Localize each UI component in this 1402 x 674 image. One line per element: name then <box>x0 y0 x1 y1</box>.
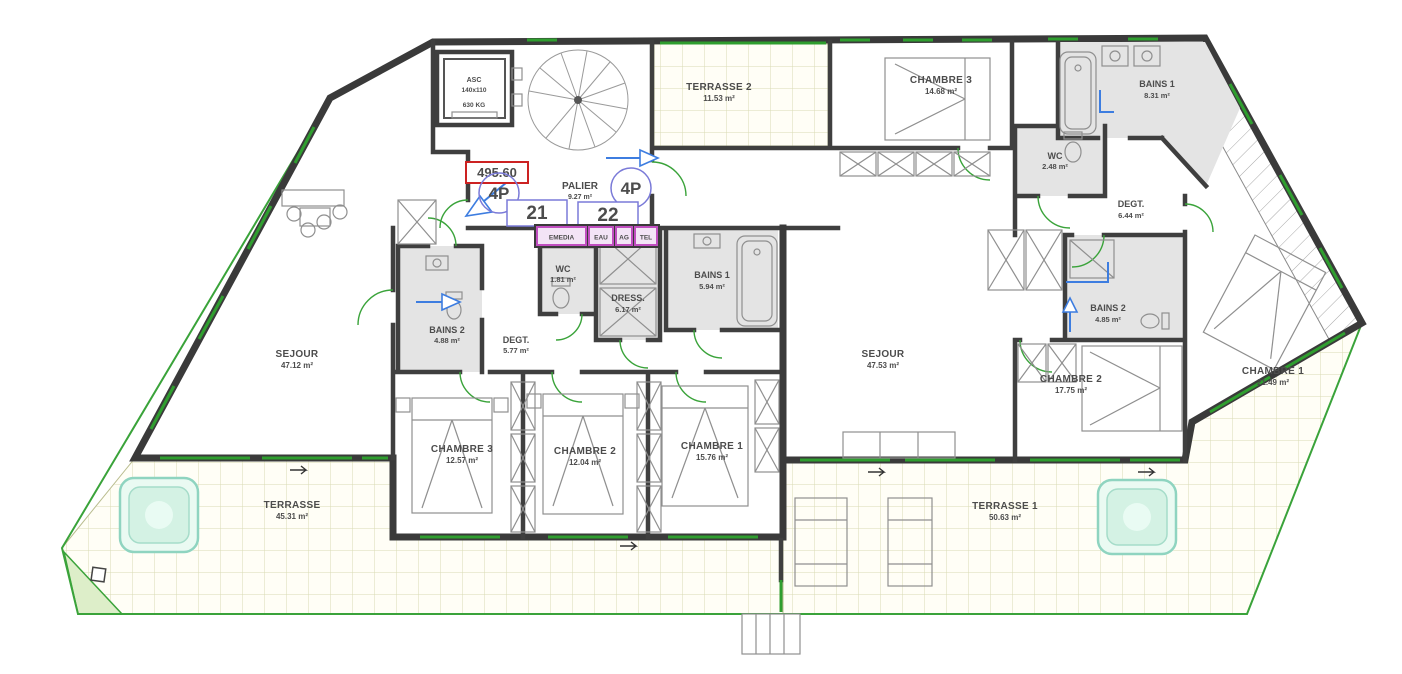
room-label-wc-21: WC <box>556 264 571 274</box>
floor-plan-canvas: ASC 140x110 630 KG <box>0 0 1402 674</box>
elevator-label: ASC <box>467 77 482 84</box>
room-label-chambre1-22: CHAMBRE 1 <box>1242 366 1304 377</box>
core-labels: 495.60 4P 4P PALIER 9.27 m² 21 22 EMEDIA… <box>466 162 660 248</box>
exterior-step <box>742 614 800 654</box>
room-label-terrasse1: TERRASSE 1 <box>972 501 1038 512</box>
room-area-bains1-21: 5.94 m² <box>699 282 725 291</box>
bed-chambre2-22 <box>1082 346 1182 431</box>
room-area-wc-21: 1.81 m² <box>550 275 576 284</box>
utility-ducts: EMEDIA EAU AG TEL <box>534 224 660 248</box>
palier-label: PALIER <box>562 181 599 192</box>
elevator-capacity: 630 KG <box>463 102 485 109</box>
unit21-number: 21 <box>526 203 548 224</box>
bains1-21-floor <box>666 230 778 330</box>
room-area-terrasse1: 50.63 m² <box>989 513 1021 522</box>
room-area-chambre3-22: 14.68 m² <box>925 87 957 96</box>
room-label-bains1-21: BAINS 1 <box>694 270 730 280</box>
unit22-type: 4P <box>621 179 642 198</box>
room-label-wc-22: WC <box>1048 151 1063 161</box>
room-label-degt-21: DEGT. <box>503 335 530 345</box>
room-label-chambre3-22: CHAMBRE 3 <box>910 75 972 86</box>
room-area-chambre2-21: 12.04 m² <box>569 458 601 467</box>
elevator: ASC 140x110 630 KG <box>437 52 522 125</box>
room-label-terrasse-21: TERRASSE <box>264 500 321 511</box>
room-area-dress-21: 6.17 m² <box>615 305 641 314</box>
room-label-chambre3-21: CHAMBRE 3 <box>431 444 493 455</box>
spiral-staircase <box>528 50 628 150</box>
room-area-chambre1-21: 15.76 m² <box>696 453 728 462</box>
bed-chambre3-22 <box>885 58 990 140</box>
sofa-sejour-21 <box>282 190 347 237</box>
room-area-chambre1-22: 21.49 m² <box>1257 378 1289 387</box>
room-label-bains2-21: BAINS 2 <box>429 325 465 335</box>
room-area-wc-22: 2.48 m² <box>1042 162 1068 171</box>
room-label-terrasse2: TERRASSE 2 <box>686 82 752 93</box>
room-area-chambre2-22: 17.75 m² <box>1055 386 1087 395</box>
room-area-terrasse-21: 45.31 m² <box>276 512 308 521</box>
room-area-terrasse2: 11.53 m² <box>703 94 735 103</box>
utility-emedia: EMEDIA <box>549 235 575 242</box>
room-label-chambre1-21: CHAMBRE 1 <box>681 441 743 452</box>
utility-ag: AG <box>619 235 629 242</box>
room-area-degt-21: 5.77 m² <box>503 346 529 355</box>
room-label-bains2-22: BAINS 2 <box>1090 303 1126 313</box>
palier-area: 9.27 m² <box>568 194 593 201</box>
utility-eau: EAU <box>594 235 608 242</box>
room-area-chambre3-21: 12.57 m² <box>446 456 478 465</box>
room-label-chambre2-22: CHAMBRE 2 <box>1040 374 1102 385</box>
terrace-2-surface <box>654 44 828 146</box>
room-label-dress-21: DRESS. <box>611 293 645 303</box>
room-label-bains1-22: BAINS 1 <box>1139 79 1175 89</box>
room-area-bains1-22: 8.31 m² <box>1144 91 1170 100</box>
room-label-sejour-21: SEJOUR <box>276 349 319 360</box>
floor-plan-page: ASC 140x110 630 KG <box>0 0 1402 674</box>
unit22-number: 22 <box>597 205 618 226</box>
room-area-bains2-22: 4.85 m² <box>1095 315 1121 324</box>
room-area-degt-22: 6.44 m² <box>1118 211 1144 220</box>
terrace-corner-fixture <box>91 567 106 582</box>
room-label-sejour-22: SEJOUR <box>862 349 905 360</box>
room-label-chambre2-21: CHAMBRE 2 <box>554 446 616 457</box>
utility-tel: TEL <box>640 235 652 242</box>
room-area-sejour-22: 47.53 m² <box>867 361 899 370</box>
sofa-sejour-22 <box>843 432 955 458</box>
room-label-degt-22: DEGT. <box>1118 199 1145 209</box>
elevator-dims: 140x110 <box>462 87 487 94</box>
room-area-sejour-21: 47.12 m² <box>281 361 313 370</box>
room-area-bains2-21: 4.88 m² <box>434 336 460 345</box>
